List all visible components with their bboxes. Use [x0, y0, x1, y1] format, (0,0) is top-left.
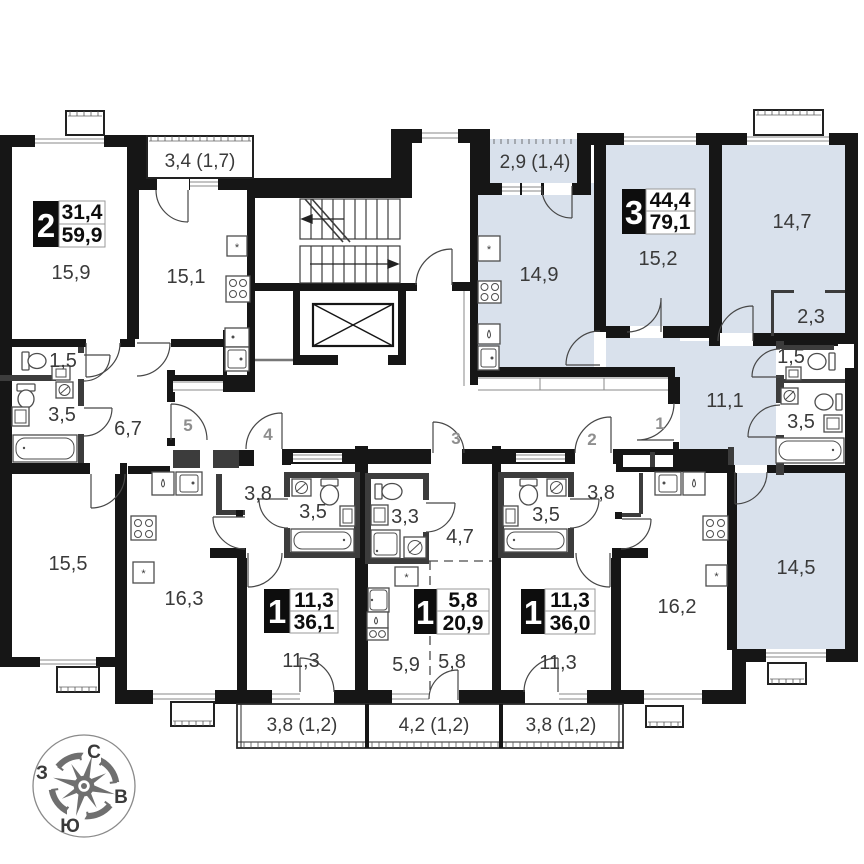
svg-text:3,8 (1,2): 3,8 (1,2) [526, 715, 597, 736]
svg-text:5,8: 5,8 [438, 651, 466, 673]
svg-text:*: * [714, 571, 719, 583]
svg-text:11,3: 11,3 [550, 589, 590, 612]
svg-text:15,2: 15,2 [639, 248, 678, 270]
svg-text:14,5: 14,5 [777, 557, 816, 579]
svg-text:2,3: 2,3 [797, 306, 825, 328]
svg-text:*: * [404, 572, 409, 584]
svg-text:31,4: 31,4 [62, 201, 103, 224]
svg-text:1,5: 1,5 [777, 346, 805, 368]
svg-text:36,0: 36,0 [550, 612, 591, 635]
svg-text:3,8: 3,8 [587, 482, 615, 504]
svg-text:15,5: 15,5 [49, 553, 88, 575]
svg-text:14,7: 14,7 [773, 211, 812, 233]
svg-text:1: 1 [655, 414, 664, 433]
svg-text:2: 2 [37, 207, 55, 244]
svg-text:*: * [141, 568, 146, 580]
svg-text:11,3: 11,3 [294, 589, 334, 612]
svg-text:3,8: 3,8 [244, 483, 272, 505]
svg-text:*: * [235, 242, 240, 254]
svg-text:4: 4 [263, 425, 273, 444]
svg-text:3,5: 3,5 [299, 501, 327, 523]
svg-text:11,1: 11,1 [706, 390, 743, 412]
svg-text:5: 5 [183, 416, 192, 435]
svg-text:В: В [114, 787, 128, 808]
svg-text:44,4: 44,4 [650, 189, 691, 212]
svg-text:36,1: 36,1 [294, 611, 335, 634]
svg-text:16,2: 16,2 [658, 596, 697, 618]
svg-text:5,9: 5,9 [392, 654, 420, 676]
svg-text:З: З [36, 763, 48, 784]
svg-text:1: 1 [416, 594, 434, 631]
svg-text:11,3: 11,3 [282, 650, 319, 672]
svg-text:Ю: Ю [60, 816, 80, 837]
svg-text:5,8: 5,8 [448, 589, 478, 612]
svg-text:1: 1 [524, 594, 542, 631]
svg-text:4,2 (1,2): 4,2 (1,2) [399, 715, 470, 736]
svg-text:2: 2 [587, 430, 596, 449]
svg-text:4,7: 4,7 [446, 526, 474, 548]
svg-text:3,4 (1,7): 3,4 (1,7) [165, 151, 236, 172]
svg-text:11,3: 11,3 [539, 652, 576, 674]
svg-text:С: С [87, 742, 101, 763]
svg-text:3,8 (1,2): 3,8 (1,2) [267, 715, 338, 736]
svg-text:3,3: 3,3 [391, 506, 419, 528]
svg-text:59,9: 59,9 [62, 224, 103, 247]
svg-text:1: 1 [268, 593, 286, 630]
svg-text:3,5: 3,5 [48, 404, 76, 426]
svg-text:15,1: 15,1 [167, 266, 206, 288]
svg-text:6,7: 6,7 [114, 418, 142, 440]
svg-text:3: 3 [625, 194, 643, 231]
svg-text:1,5: 1,5 [49, 350, 77, 372]
svg-text:2,9 (1,4): 2,9 (1,4) [500, 152, 571, 173]
svg-text:*: * [487, 244, 492, 256]
svg-text:3,5: 3,5 [787, 411, 815, 433]
svg-text:15,9: 15,9 [52, 262, 91, 284]
svg-text:79,1: 79,1 [650, 211, 691, 234]
svg-text:20,9: 20,9 [443, 612, 484, 635]
svg-text:16,3: 16,3 [165, 588, 204, 610]
svg-text:14,9: 14,9 [520, 264, 559, 286]
svg-text:3,5: 3,5 [532, 504, 560, 526]
svg-text:3: 3 [451, 429, 460, 448]
